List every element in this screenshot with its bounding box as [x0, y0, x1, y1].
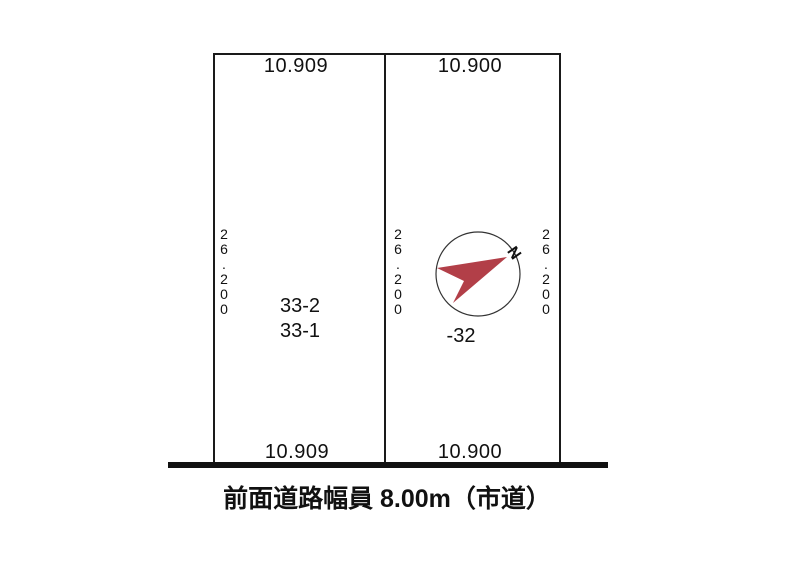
north-arrow-icon: [437, 257, 507, 303]
left-plot-bottom-width: 10.909: [265, 441, 329, 464]
parcel-label-33-1: 33-1: [280, 319, 320, 344]
parcel-label-33-2: 33-2: [280, 294, 320, 319]
left-plot-top-width: 10.909: [264, 55, 328, 78]
right-plot-bottom-width: 10.900: [438, 441, 502, 464]
right-plot-top-width: 10.900: [438, 55, 502, 78]
left-plot-parcel-labels: 33-2 33-1: [280, 294, 320, 344]
plot-divider-line: [384, 53, 386, 464]
right-plot-depth-left: 26.200: [391, 226, 405, 316]
right-plot-depth-right: 26.200: [539, 226, 553, 316]
right-plot-parcel-label: -32: [447, 325, 476, 348]
left-plot-depth: 26.200: [217, 226, 231, 316]
plot-right-boundary-line: [559, 53, 561, 464]
site-plan-diagram: 10.909 10.900 10.909 10.900 26.200 26.20…: [0, 0, 800, 566]
north-label: N: [503, 244, 523, 263]
road-width-caption: 前面道路幅員 8.00m（市道）: [223, 479, 551, 515]
plot-left-boundary-line: [213, 53, 215, 464]
north-compass: N: [433, 229, 523, 319]
road-edge-line: [168, 462, 608, 468]
